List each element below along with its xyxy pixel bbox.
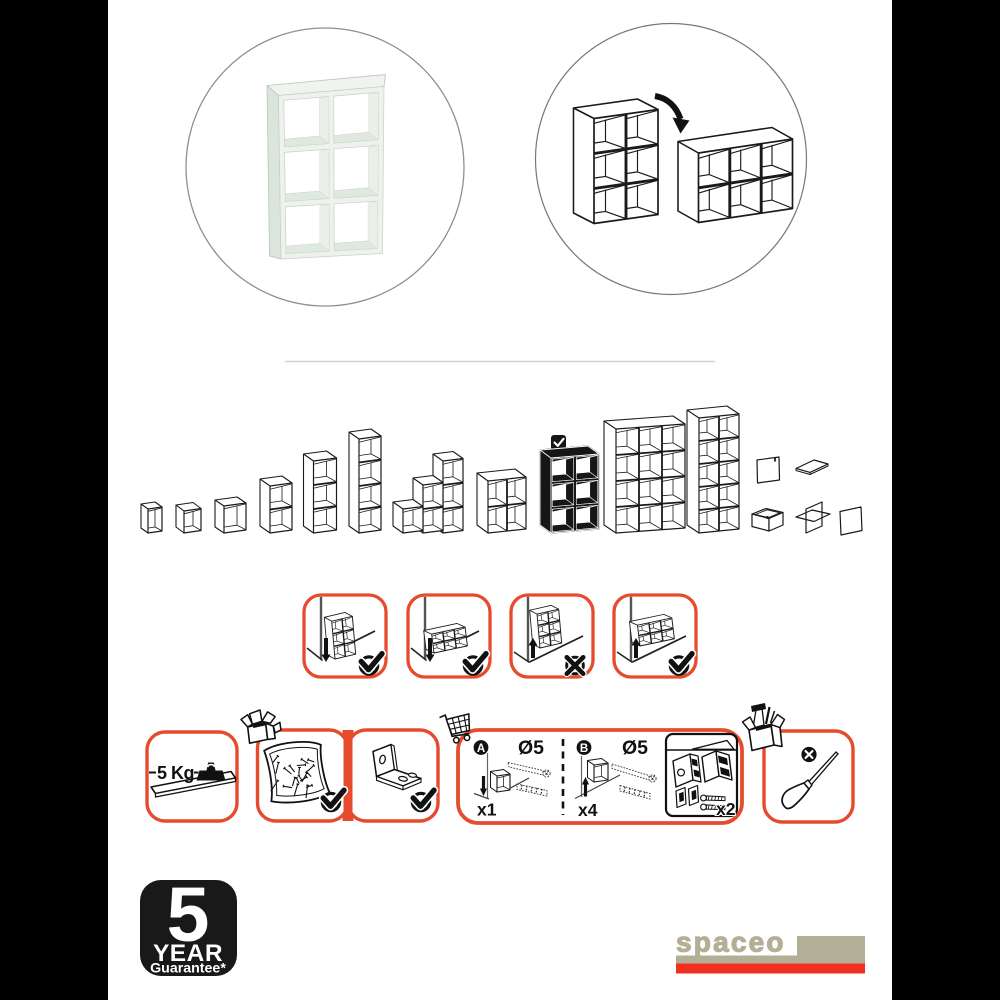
svg-text:5 Kg: 5 Kg [157,763,194,783]
svg-text:x4: x4 [578,800,598,820]
svg-text:x2: x2 [716,799,736,819]
svg-text:x1: x1 [477,800,497,820]
svg-text:B: B [580,743,588,755]
svg-text:Ø5: Ø5 [518,737,544,759]
svg-text:A: A [477,743,485,755]
svg-text:spaceo: spaceo [676,927,786,958]
svg-text:Guarantee*: Guarantee* [150,961,226,977]
svg-text:Ø5: Ø5 [622,737,648,759]
